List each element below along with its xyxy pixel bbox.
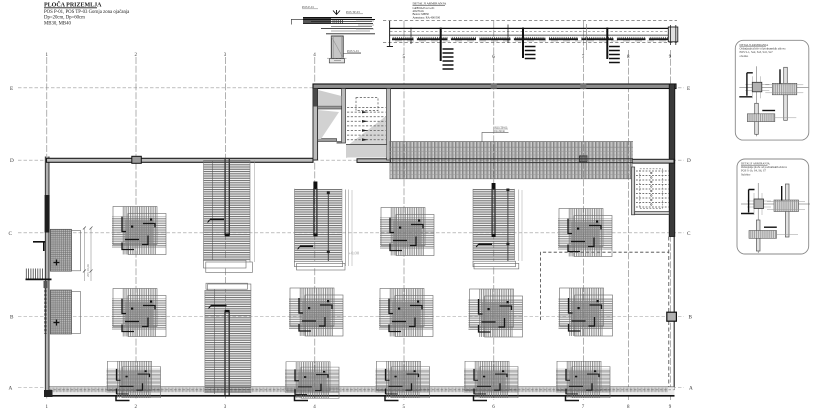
svg-text:D: D: [687, 158, 691, 164]
svg-text:C: C: [9, 231, 13, 237]
svg-text:Sučelno: Sučelno: [741, 172, 751, 176]
svg-text:B: B: [689, 315, 693, 321]
svg-text:obodno: obodno: [740, 54, 749, 58]
svg-text:POS P-01, POS TP-03 Gornja zon: POS P-01, POS TP-03 Gornja zona ojačanja: [44, 10, 130, 15]
svg-text:POS S-01: POS S-01: [347, 49, 359, 53]
svg-text:POS P-01: POS P-01: [302, 5, 314, 9]
svg-text:POS TP-03: POS TP-03: [346, 10, 360, 14]
svg-text:B: B: [10, 315, 14, 321]
svg-text:D: D: [10, 158, 14, 164]
svg-text:E: E: [687, 86, 690, 92]
svg-text:PLOČA PRIZEMLJA: PLOČA PRIZEMLJA: [44, 1, 102, 9]
svg-text:A: A: [689, 386, 693, 392]
svg-text:Dp=20cm, Dp=60cm: Dp=20cm, Dp=60cm: [44, 16, 85, 21]
svg-text:Armatura: RA 400/500: Armatura: RA 400/500: [413, 15, 441, 19]
svg-text:E: E: [10, 86, 13, 92]
svg-text:A: A: [9, 386, 13, 392]
svg-text:C: C: [687, 231, 691, 237]
svg-text:MB30, MB40: MB30, MB40: [44, 21, 72, 26]
